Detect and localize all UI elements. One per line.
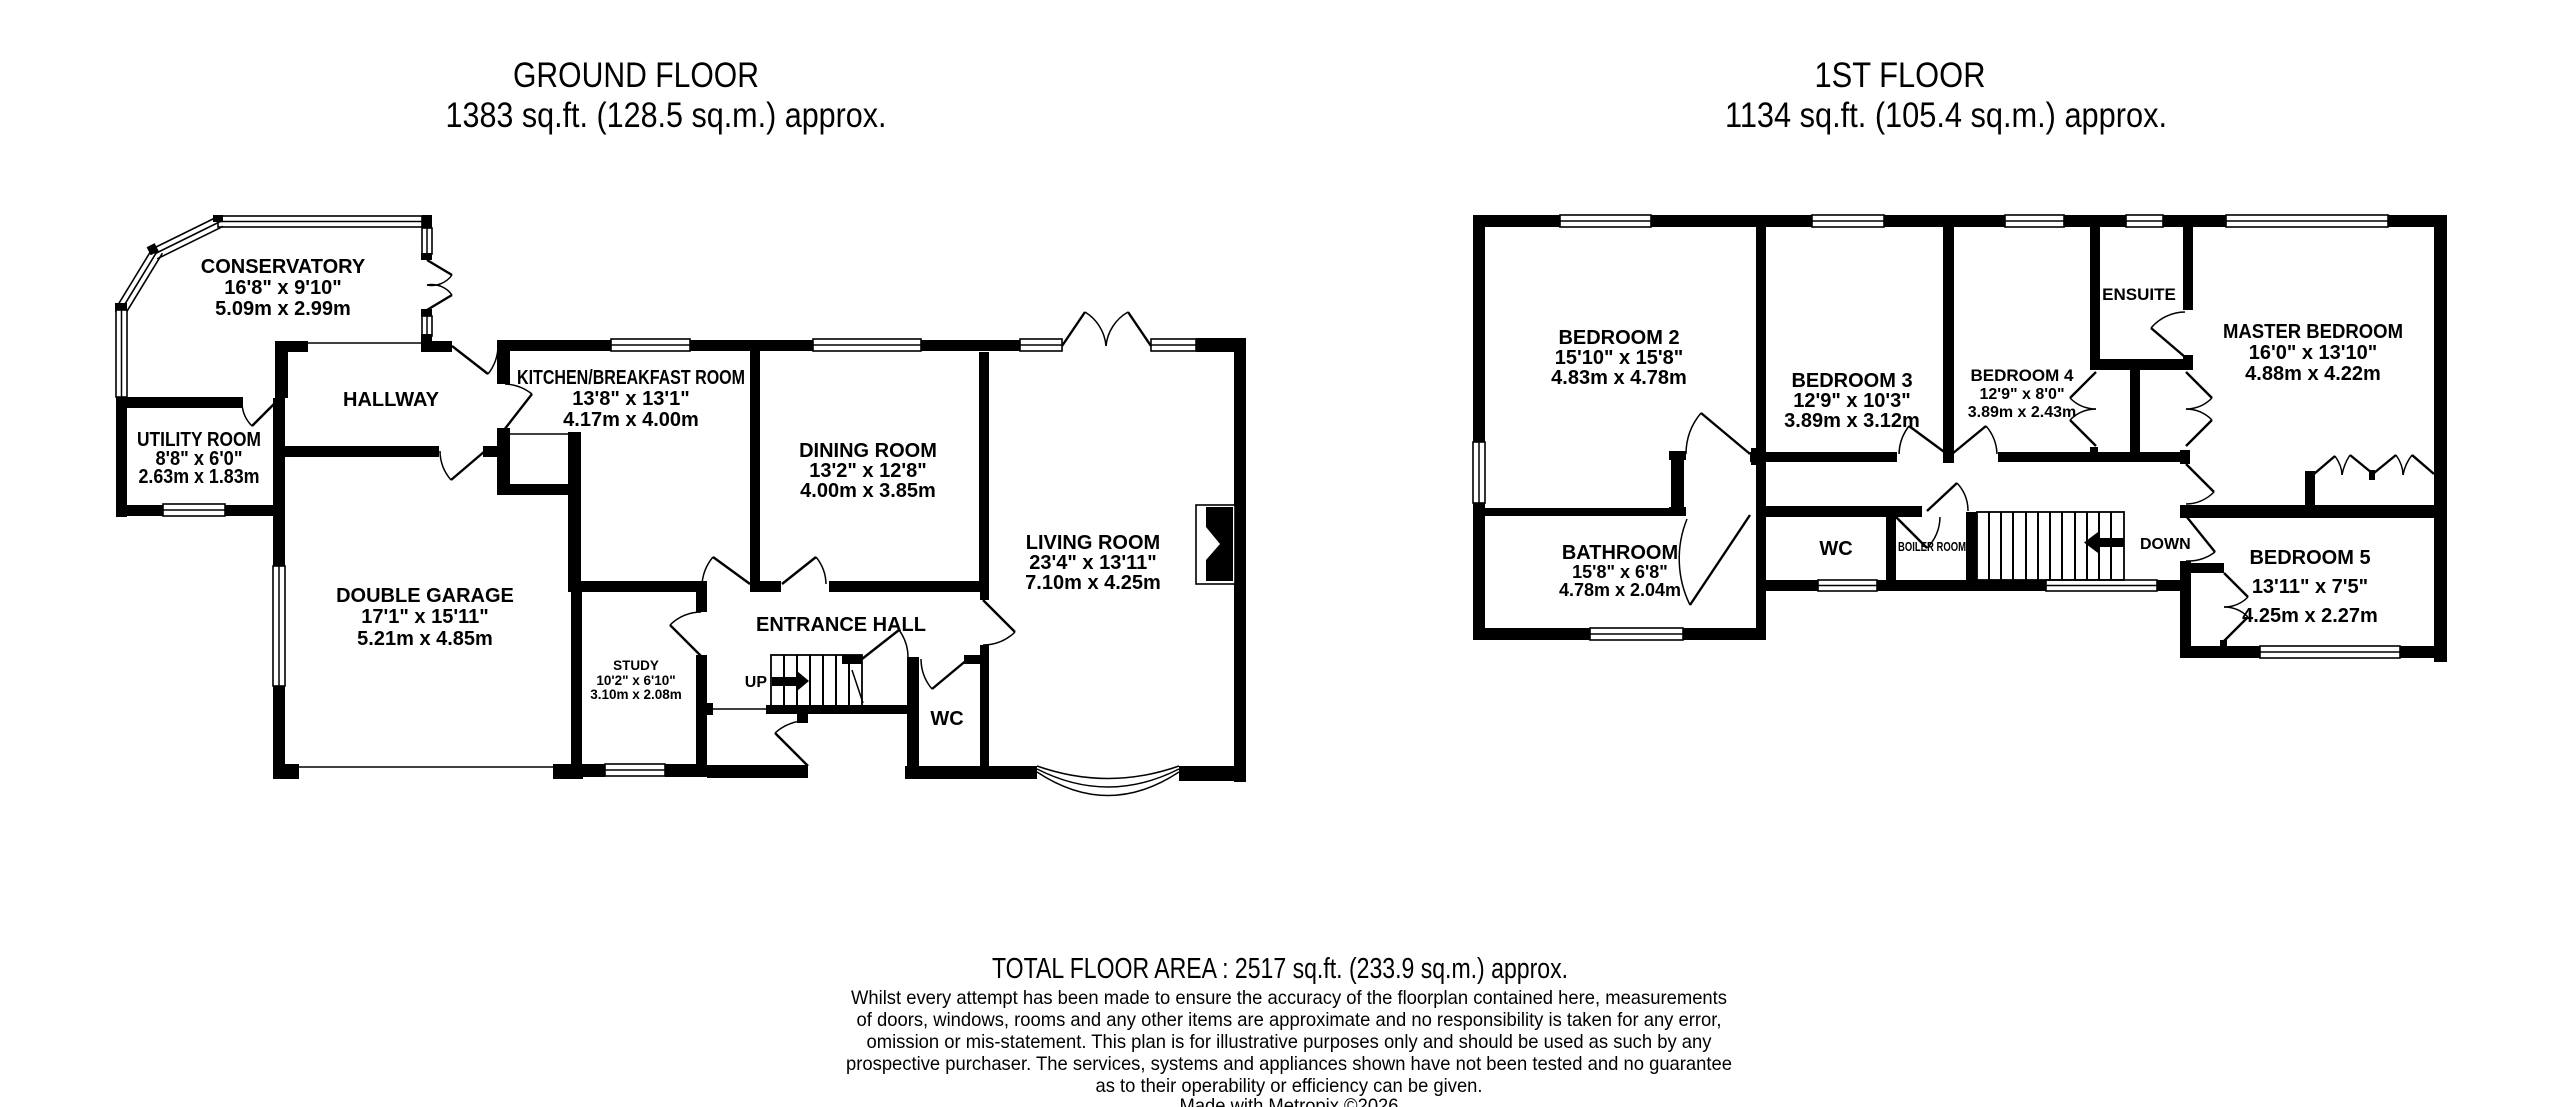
svg-text:12'9" x 8'0": 12'9" x 8'0"	[1979, 386, 2064, 403]
svg-text:BEDROOM 3: BEDROOM 3	[1791, 370, 1912, 392]
svg-text:1ST FLOOR: 1ST FLOOR	[1815, 56, 1986, 95]
svg-text:23'4" x 13'11": 23'4" x 13'11"	[1029, 552, 1156, 574]
svg-text:5.21m x 4.85m: 5.21m x 4.85m	[357, 628, 493, 650]
svg-text:ENSUITE: ENSUITE	[2102, 285, 2176, 304]
svg-text:DOUBLE GARAGE: DOUBLE GARAGE	[336, 585, 514, 607]
svg-text:STUDY: STUDY	[613, 658, 659, 673]
svg-text:4.00m x 3.85m: 4.00m x 3.85m	[800, 480, 936, 502]
svg-text:5.09m x 2.99m: 5.09m x 2.99m	[215, 298, 351, 320]
svg-text:17'1" x 15'11": 17'1" x 15'11"	[361, 606, 488, 628]
svg-text:4.88m x 4.22m: 4.88m x 4.22m	[2245, 363, 2381, 385]
svg-text:WC: WC	[930, 708, 963, 730]
svg-text:16'8" x 9'10": 16'8" x 9'10"	[224, 277, 341, 299]
svg-text:CONSERVATORY: CONSERVATORY	[201, 256, 366, 278]
svg-text:15'8" x 6'8": 15'8" x 6'8"	[1572, 562, 1668, 582]
svg-text:1134 sq.ft. (105.4 sq.m.) appr: 1134 sq.ft. (105.4 sq.m.) approx.	[1725, 96, 2167, 135]
svg-text:GROUND FLOOR: GROUND FLOOR	[513, 56, 759, 95]
svg-text:BEDROOM 5: BEDROOM 5	[2249, 547, 2370, 569]
svg-text:4.83m x 4.78m: 4.83m x 4.78m	[1551, 367, 1687, 389]
svg-text:TOTAL FLOOR AREA : 2517 sq.ft.: TOTAL FLOOR AREA : 2517 sq.ft. (233.9 sq…	[992, 953, 1568, 985]
svg-text:MASTER BEDROOM: MASTER BEDROOM	[2223, 321, 2403, 343]
svg-text:UP: UP	[745, 674, 768, 691]
svg-text:WC: WC	[1819, 538, 1852, 560]
svg-text:DOWN: DOWN	[2140, 536, 2191, 553]
svg-text:of doors, windows, rooms and a: of doors, windows, rooms and any other i…	[857, 1009, 1722, 1031]
svg-text:1383 sq.ft. (128.5 sq.m.) appr: 1383 sq.ft. (128.5 sq.m.) approx.	[446, 96, 887, 135]
svg-text:3.89m x 2.43m: 3.89m x 2.43m	[1968, 404, 2077, 421]
svg-text:BATHROOM: BATHROOM	[1562, 542, 1678, 564]
svg-text:omission or mis-statement. Thi: omission or mis-statement. This plan is …	[867, 1031, 1712, 1053]
svg-text:10'2" x 6'10": 10'2" x 6'10"	[596, 673, 675, 688]
svg-text:prospective purchaser. The ser: prospective purchaser. The services, sys…	[846, 1053, 1732, 1075]
svg-text:4.78m x 2.04m: 4.78m x 2.04m	[1559, 580, 1681, 600]
svg-text:BEDROOM 2: BEDROOM 2	[1558, 327, 1679, 349]
svg-text:13'8" x 13'1": 13'8" x 13'1"	[572, 388, 689, 410]
svg-text:Made with Metropix ©2026: Made with Metropix ©2026	[1180, 1095, 1399, 1107]
svg-text:4.25m x 2.27m: 4.25m x 2.27m	[2242, 605, 2378, 627]
svg-text:13'11" x 7'5": 13'11" x 7'5"	[2252, 576, 2368, 598]
svg-text:13'2" x 12'8": 13'2" x 12'8"	[809, 460, 926, 482]
svg-text:Whilst every attempt has been: Whilst every attempt has been made to en…	[851, 987, 1727, 1009]
svg-text:BEDROOM 4: BEDROOM 4	[1971, 366, 2075, 385]
svg-text:12'9" x 10'3": 12'9" x 10'3"	[1793, 390, 1910, 412]
svg-text:2.63m x 1.83m: 2.63m x 1.83m	[139, 466, 260, 488]
svg-text:7.10m x 4.25m: 7.10m x 4.25m	[1025, 572, 1161, 594]
svg-text:15'10" x 15'8": 15'10" x 15'8"	[1555, 347, 1684, 369]
svg-text:LIVING ROOM: LIVING ROOM	[1026, 532, 1160, 554]
svg-text:KITCHEN/BREAKFAST ROOM: KITCHEN/BREAKFAST ROOM	[517, 367, 745, 389]
svg-text:as to their operability or eff: as to their operability or efficiency ca…	[1096, 1075, 1483, 1097]
svg-text:HALLWAY: HALLWAY	[343, 389, 440, 411]
svg-text:3.10m x 2.08m: 3.10m x 2.08m	[590, 687, 682, 702]
svg-text:3.89m x 3.12m: 3.89m x 3.12m	[1784, 410, 1920, 432]
svg-text:DINING ROOM: DINING ROOM	[799, 440, 937, 462]
svg-text:4.17m x 4.00m: 4.17m x 4.00m	[563, 409, 699, 431]
svg-text:16'0" x 13'10": 16'0" x 13'10"	[2249, 342, 2378, 364]
